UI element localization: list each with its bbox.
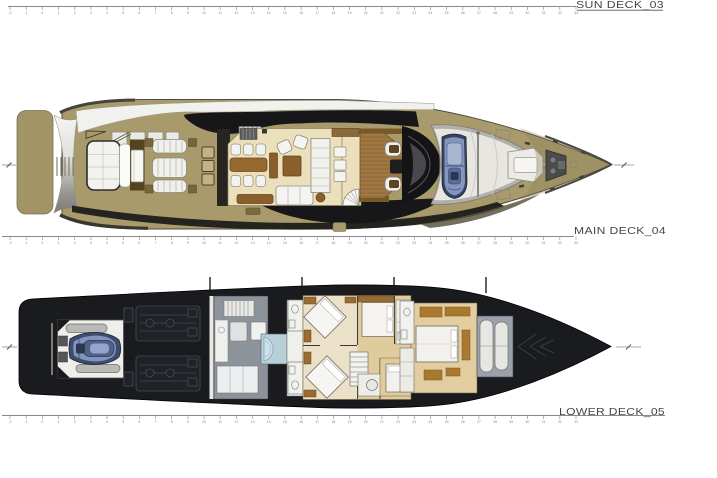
svg-text:23: 23 [412, 241, 416, 245]
svg-text:0: 0 [41, 11, 43, 15]
svg-text:2: 2 [74, 420, 76, 424]
svg-text:6: 6 [138, 11, 140, 15]
svg-text:-1: -1 [25, 11, 28, 15]
svg-text:12: 12 [234, 420, 238, 424]
svg-text:3: 3 [90, 11, 92, 15]
svg-text:15: 15 [283, 241, 287, 245]
svg-text:9: 9 [187, 420, 189, 424]
svg-text:28: 28 [493, 241, 497, 245]
svg-text:12: 12 [234, 241, 238, 245]
svg-text:5: 5 [122, 241, 124, 245]
svg-text:33: 33 [574, 241, 578, 245]
svg-text:18: 18 [331, 11, 335, 15]
svg-text:3: 3 [90, 420, 92, 424]
svg-text:17: 17 [315, 11, 319, 15]
svg-text:1: 1 [58, 241, 60, 245]
svg-text:15: 15 [283, 11, 287, 15]
svg-text:17: 17 [315, 241, 319, 245]
svg-text:-1: -1 [25, 241, 28, 245]
svg-text:1: 1 [58, 420, 60, 424]
svg-text:4: 4 [106, 420, 108, 424]
svg-text:14: 14 [267, 11, 271, 15]
svg-text:10: 10 [202, 11, 206, 15]
svg-text:21: 21 [380, 420, 384, 424]
svg-text:13: 13 [251, 420, 255, 424]
svg-text:29: 29 [509, 420, 513, 424]
svg-text:25: 25 [445, 420, 449, 424]
svg-text:8: 8 [171, 11, 173, 15]
svg-text:28: 28 [493, 11, 497, 15]
svg-text:33: 33 [574, 11, 578, 15]
svg-text:17: 17 [315, 420, 319, 424]
svg-text:15: 15 [283, 420, 287, 424]
svg-text:18: 18 [331, 241, 335, 245]
svg-text:23: 23 [412, 11, 416, 15]
svg-text:2: 2 [74, 11, 76, 15]
svg-text:-2: -2 [8, 11, 11, 15]
svg-text:6: 6 [138, 241, 140, 245]
svg-text:-2: -2 [8, 241, 11, 245]
svg-text:25: 25 [445, 241, 449, 245]
svg-text:5: 5 [122, 11, 124, 15]
svg-text:26: 26 [461, 420, 465, 424]
svg-text:27: 27 [477, 420, 481, 424]
svg-text:26: 26 [461, 241, 465, 245]
svg-text:4: 4 [106, 241, 108, 245]
svg-text:31: 31 [542, 241, 546, 245]
svg-text:4: 4 [106, 11, 108, 15]
svg-text:23: 23 [412, 420, 416, 424]
svg-text:24: 24 [428, 11, 432, 15]
svg-text:7: 7 [155, 11, 157, 15]
svg-text:27: 27 [477, 11, 481, 15]
svg-text:22: 22 [396, 11, 400, 15]
svg-text:0: 0 [41, 241, 43, 245]
svg-text:26: 26 [461, 11, 465, 15]
svg-text:24: 24 [428, 241, 432, 245]
svg-text:-1: -1 [25, 420, 28, 424]
svg-text:24: 24 [428, 420, 432, 424]
svg-text:11: 11 [218, 420, 222, 424]
svg-text:0: 0 [41, 420, 43, 424]
svg-text:32: 32 [558, 241, 562, 245]
svg-text:14: 14 [267, 420, 271, 424]
svg-text:16: 16 [299, 11, 303, 15]
svg-text:7: 7 [155, 420, 157, 424]
svg-text:21: 21 [380, 11, 384, 15]
svg-text:22: 22 [396, 241, 400, 245]
svg-text:-2: -2 [8, 420, 11, 424]
svg-text:32: 32 [558, 420, 562, 424]
svg-text:31: 31 [542, 420, 546, 424]
svg-text:33: 33 [574, 420, 578, 424]
svg-text:13: 13 [251, 11, 255, 15]
svg-text:19: 19 [348, 241, 352, 245]
svg-text:28: 28 [493, 420, 497, 424]
svg-text:22: 22 [396, 420, 400, 424]
svg-text:30: 30 [525, 11, 529, 15]
svg-text:9: 9 [187, 241, 189, 245]
svg-text:31: 31 [542, 11, 546, 15]
svg-text:10: 10 [202, 241, 206, 245]
svg-text:2: 2 [74, 241, 76, 245]
svg-text:30: 30 [525, 420, 529, 424]
svg-text:19: 19 [348, 11, 352, 15]
svg-text:6: 6 [138, 420, 140, 424]
svg-text:29: 29 [509, 241, 513, 245]
svg-text:10: 10 [202, 420, 206, 424]
svg-text:11: 11 [218, 241, 222, 245]
svg-text:32: 32 [558, 11, 562, 15]
svg-text:MAIN DECK_04: MAIN DECK_04 [574, 225, 666, 237]
svg-text:7: 7 [155, 241, 157, 245]
svg-text:3: 3 [90, 241, 92, 245]
svg-text:25: 25 [445, 11, 449, 15]
svg-text:29: 29 [509, 11, 513, 15]
svg-text:LOWER DECK_05: LOWER DECK_05 [559, 406, 665, 418]
svg-text:8: 8 [171, 420, 173, 424]
svg-text:9: 9 [187, 11, 189, 15]
svg-text:19: 19 [348, 420, 352, 424]
svg-text:21: 21 [380, 241, 384, 245]
svg-text:27: 27 [477, 241, 481, 245]
svg-text:14: 14 [267, 241, 271, 245]
svg-text:12: 12 [234, 11, 238, 15]
svg-text:8: 8 [171, 241, 173, 245]
svg-text:SUN DECK_03: SUN DECK_03 [576, 0, 664, 11]
svg-text:20: 20 [364, 11, 368, 15]
svg-text:16: 16 [299, 241, 303, 245]
svg-text:30: 30 [525, 241, 529, 245]
svg-text:16: 16 [299, 420, 303, 424]
svg-text:5: 5 [122, 420, 124, 424]
svg-text:13: 13 [251, 241, 255, 245]
svg-text:11: 11 [218, 11, 222, 15]
svg-text:1: 1 [58, 11, 60, 15]
svg-text:20: 20 [364, 420, 368, 424]
svg-text:18: 18 [331, 420, 335, 424]
svg-text:20: 20 [364, 241, 368, 245]
